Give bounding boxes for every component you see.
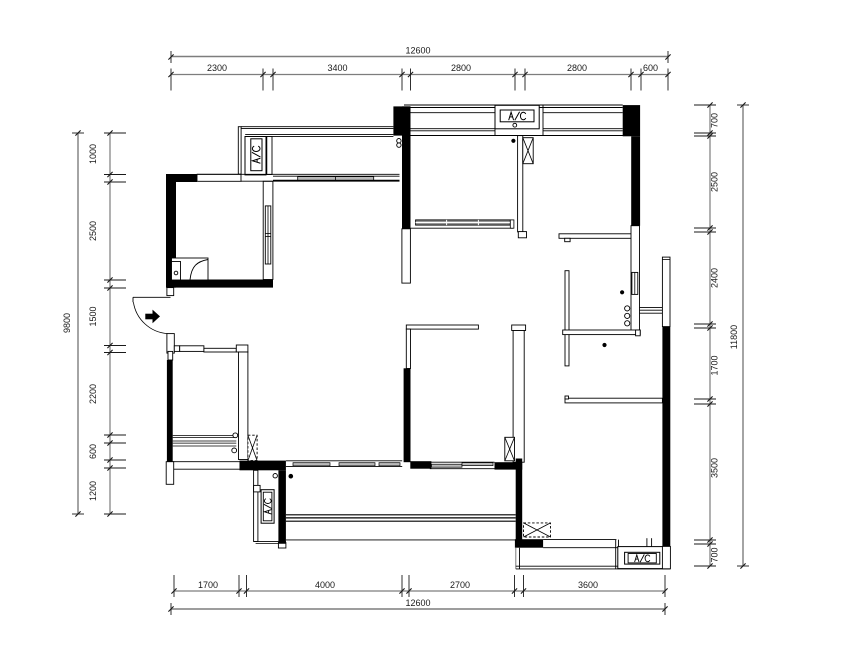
svg-text:600: 600 bbox=[643, 63, 658, 73]
svg-text:1200: 1200 bbox=[88, 481, 98, 501]
svg-text:2500: 2500 bbox=[710, 172, 720, 192]
svg-text:9800: 9800 bbox=[62, 313, 72, 333]
svg-text:2800: 2800 bbox=[451, 63, 471, 73]
svg-text:3600: 3600 bbox=[578, 580, 598, 590]
svg-text:2300: 2300 bbox=[207, 63, 227, 73]
svg-text:1500: 1500 bbox=[88, 306, 98, 326]
svg-text:2200: 2200 bbox=[88, 384, 98, 404]
svg-text:600: 600 bbox=[88, 444, 98, 459]
svg-text:11800: 11800 bbox=[729, 325, 739, 349]
svg-text:2500: 2500 bbox=[88, 221, 98, 241]
svg-text:12600: 12600 bbox=[405, 598, 430, 608]
svg-text:3400: 3400 bbox=[327, 63, 347, 73]
svg-text:4000: 4000 bbox=[315, 580, 335, 590]
svg-text:3500: 3500 bbox=[710, 458, 720, 478]
svg-text:1700: 1700 bbox=[198, 580, 218, 590]
svg-text:700: 700 bbox=[710, 547, 720, 562]
svg-text:2400: 2400 bbox=[710, 268, 720, 288]
svg-text:1700: 1700 bbox=[710, 355, 720, 375]
svg-text:2700: 2700 bbox=[450, 580, 470, 590]
svg-text:700: 700 bbox=[710, 113, 720, 128]
svg-text:1000: 1000 bbox=[88, 144, 98, 164]
svg-text:12600: 12600 bbox=[405, 46, 430, 56]
svg-text:2800: 2800 bbox=[567, 63, 587, 73]
